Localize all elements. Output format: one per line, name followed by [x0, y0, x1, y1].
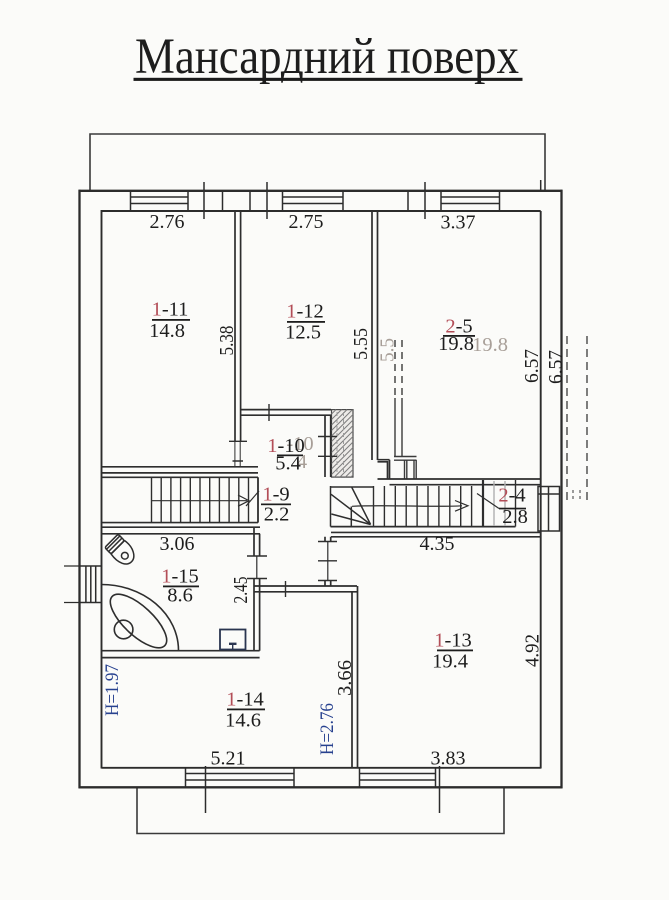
svg-text:12.5: 12.5 — [285, 322, 321, 344]
svg-text:14.6: 14.6 — [225, 710, 261, 732]
svg-text:2.76: 2.76 — [150, 211, 185, 233]
svg-text:1-13: 1-13 — [434, 630, 472, 652]
svg-text:4.35: 4.35 — [420, 533, 455, 555]
svg-text:1-11: 1-11 — [152, 299, 189, 321]
svg-text:H=1.97: H=1.97 — [102, 664, 123, 716]
svg-text:H=2.76: H=2.76 — [317, 703, 338, 755]
svg-text:4.92: 4.92 — [522, 634, 544, 667]
svg-text:5.38: 5.38 — [216, 326, 238, 356]
svg-text:Мансардний поверх: Мансардний поверх — [135, 29, 519, 85]
svg-text:2.75: 2.75 — [289, 211, 324, 233]
svg-text:3.83: 3.83 — [431, 748, 466, 770]
svg-text:1-12: 1-12 — [286, 301, 324, 323]
svg-text:19.8: 19.8 — [438, 333, 474, 355]
svg-text:3.66: 3.66 — [334, 660, 356, 696]
svg-text:2.8: 2.8 — [502, 506, 528, 528]
svg-text:6.57: 6.57 — [545, 350, 567, 384]
svg-text:5.21: 5.21 — [211, 748, 246, 770]
svg-text:5.55: 5.55 — [350, 328, 372, 360]
svg-text:19.8: 19.8 — [472, 334, 508, 356]
svg-text:1-14: 1-14 — [226, 689, 264, 711]
svg-text:6.57: 6.57 — [521, 349, 543, 383]
svg-text:2.2: 2.2 — [264, 504, 290, 526]
svg-text:14.8: 14.8 — [149, 320, 185, 342]
svg-text:8.6: 8.6 — [167, 585, 193, 607]
svg-text:1-9: 1-9 — [262, 484, 289, 506]
svg-text:3.37: 3.37 — [441, 212, 476, 234]
svg-text:5.4: 5.4 — [275, 453, 301, 475]
svg-text:5.5: 5.5 — [377, 338, 399, 362]
svg-text:19.4: 19.4 — [432, 651, 468, 673]
svg-text:2-4: 2-4 — [498, 485, 525, 507]
svg-text:3.06: 3.06 — [160, 533, 195, 555]
svg-text:2.45: 2.45 — [230, 577, 252, 604]
